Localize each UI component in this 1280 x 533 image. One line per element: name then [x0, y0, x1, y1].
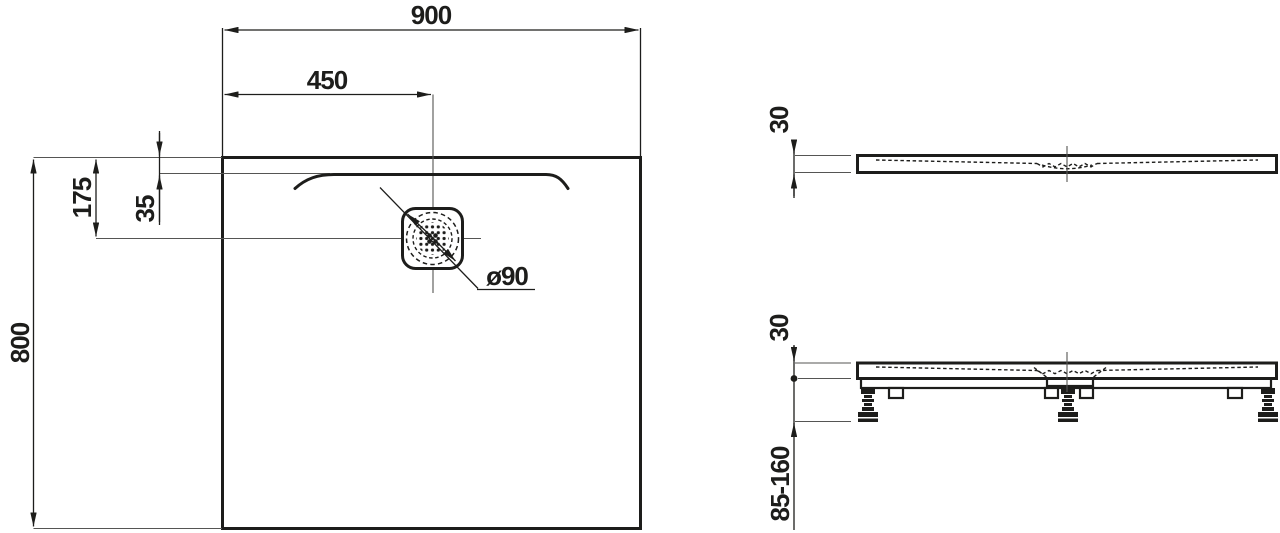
plan-view: 900 450 800 175 35: [5, 0, 641, 529]
frame-bracket: [1080, 388, 1093, 398]
frame-bracket: [889, 388, 903, 398]
dim-overall-width: 900: [411, 0, 452, 30]
dim-tray-thickness: 30: [764, 314, 794, 341]
frame-bracket: [1228, 388, 1242, 398]
drain-center-hole: [433, 233, 438, 238]
dim-drain-offset-top: 175: [67, 177, 97, 218]
adjustable-foot-right: [1258, 388, 1278, 422]
frame-bracket: [1045, 388, 1058, 398]
installation-view: 30 85-160: [764, 314, 1278, 530]
technical-drawing-sheet: 900 450 800 175 35: [0, 0, 1280, 533]
dim-slope-edge-offset: 35: [130, 195, 160, 222]
dim-drain-diameter: ø90: [486, 261, 528, 291]
adjustable-foot-center: [1058, 388, 1078, 422]
dim-drain-offset-left: 450: [307, 65, 348, 95]
dim-installation-height-range: 85-160: [765, 446, 795, 521]
shower-tray-drawing: 900 450 800 175 35: [0, 0, 1280, 533]
dim-tray-thickness: 30: [764, 106, 794, 133]
adjustable-foot-left: [858, 388, 878, 422]
side-view: 30: [764, 106, 1277, 198]
dim-reference-dot: [791, 375, 798, 382]
dim-overall-depth: 800: [5, 322, 35, 363]
